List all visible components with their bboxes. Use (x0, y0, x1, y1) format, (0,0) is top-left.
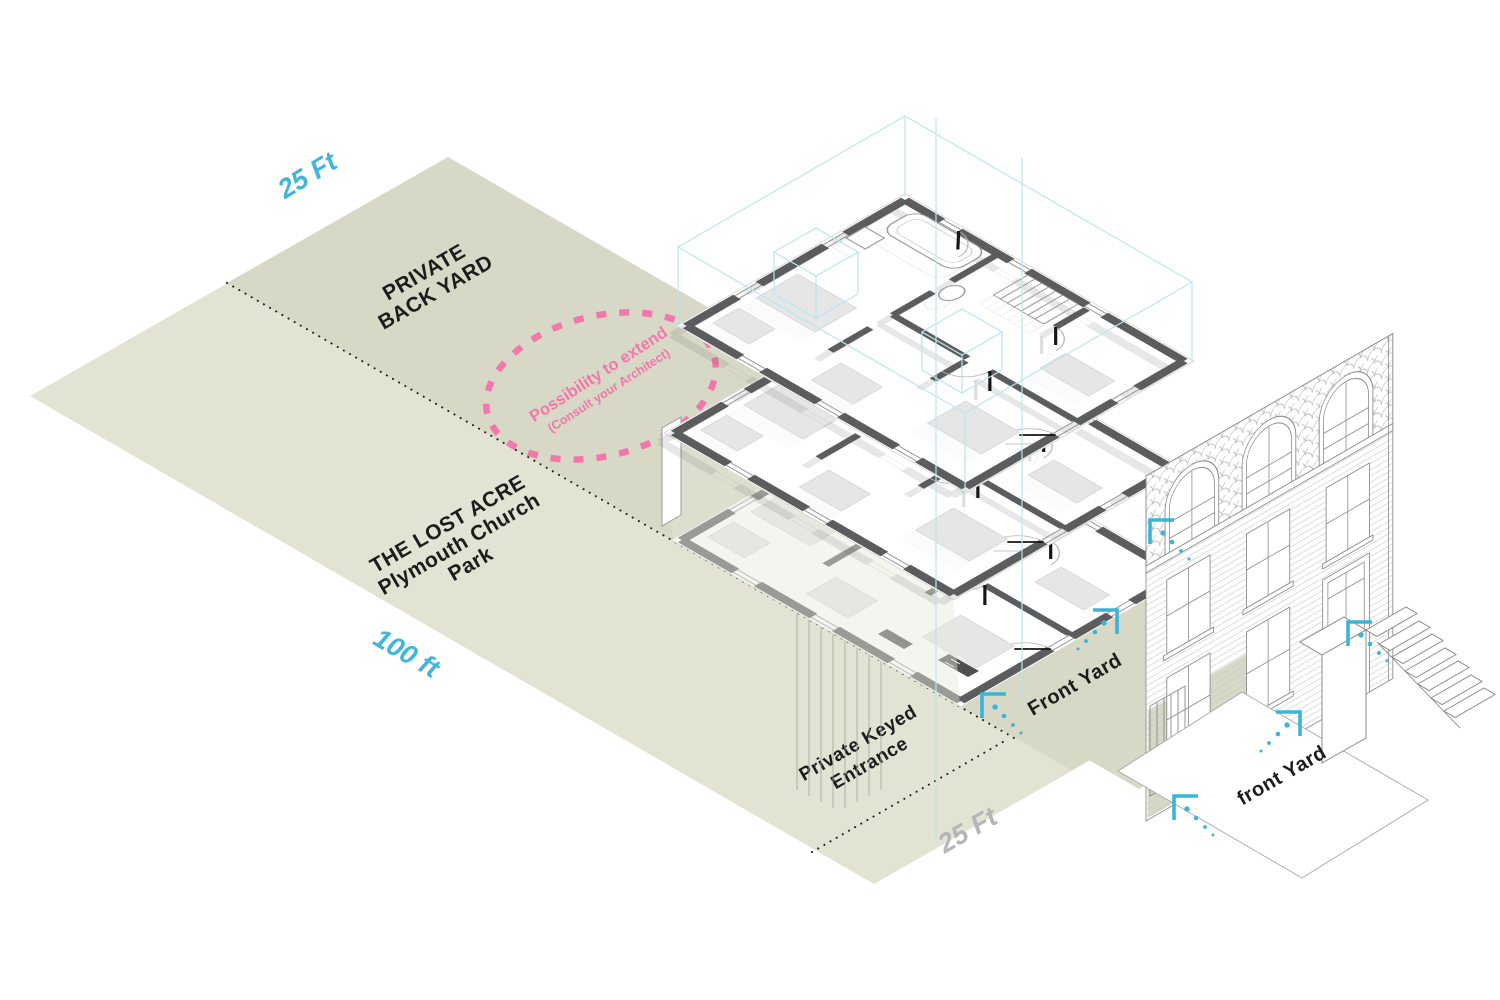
site-diagram: Possibility to extend (Consult your Arch… (0, 0, 1500, 1000)
dimension-100ft: 100 ft (368, 623, 445, 685)
dimension-25ft-top: 25 Ft (272, 146, 343, 205)
stoop-stairs (1300, 607, 1495, 763)
site-plan-svg: Possibility to extend (Consult your Arch… (0, 0, 1500, 1000)
